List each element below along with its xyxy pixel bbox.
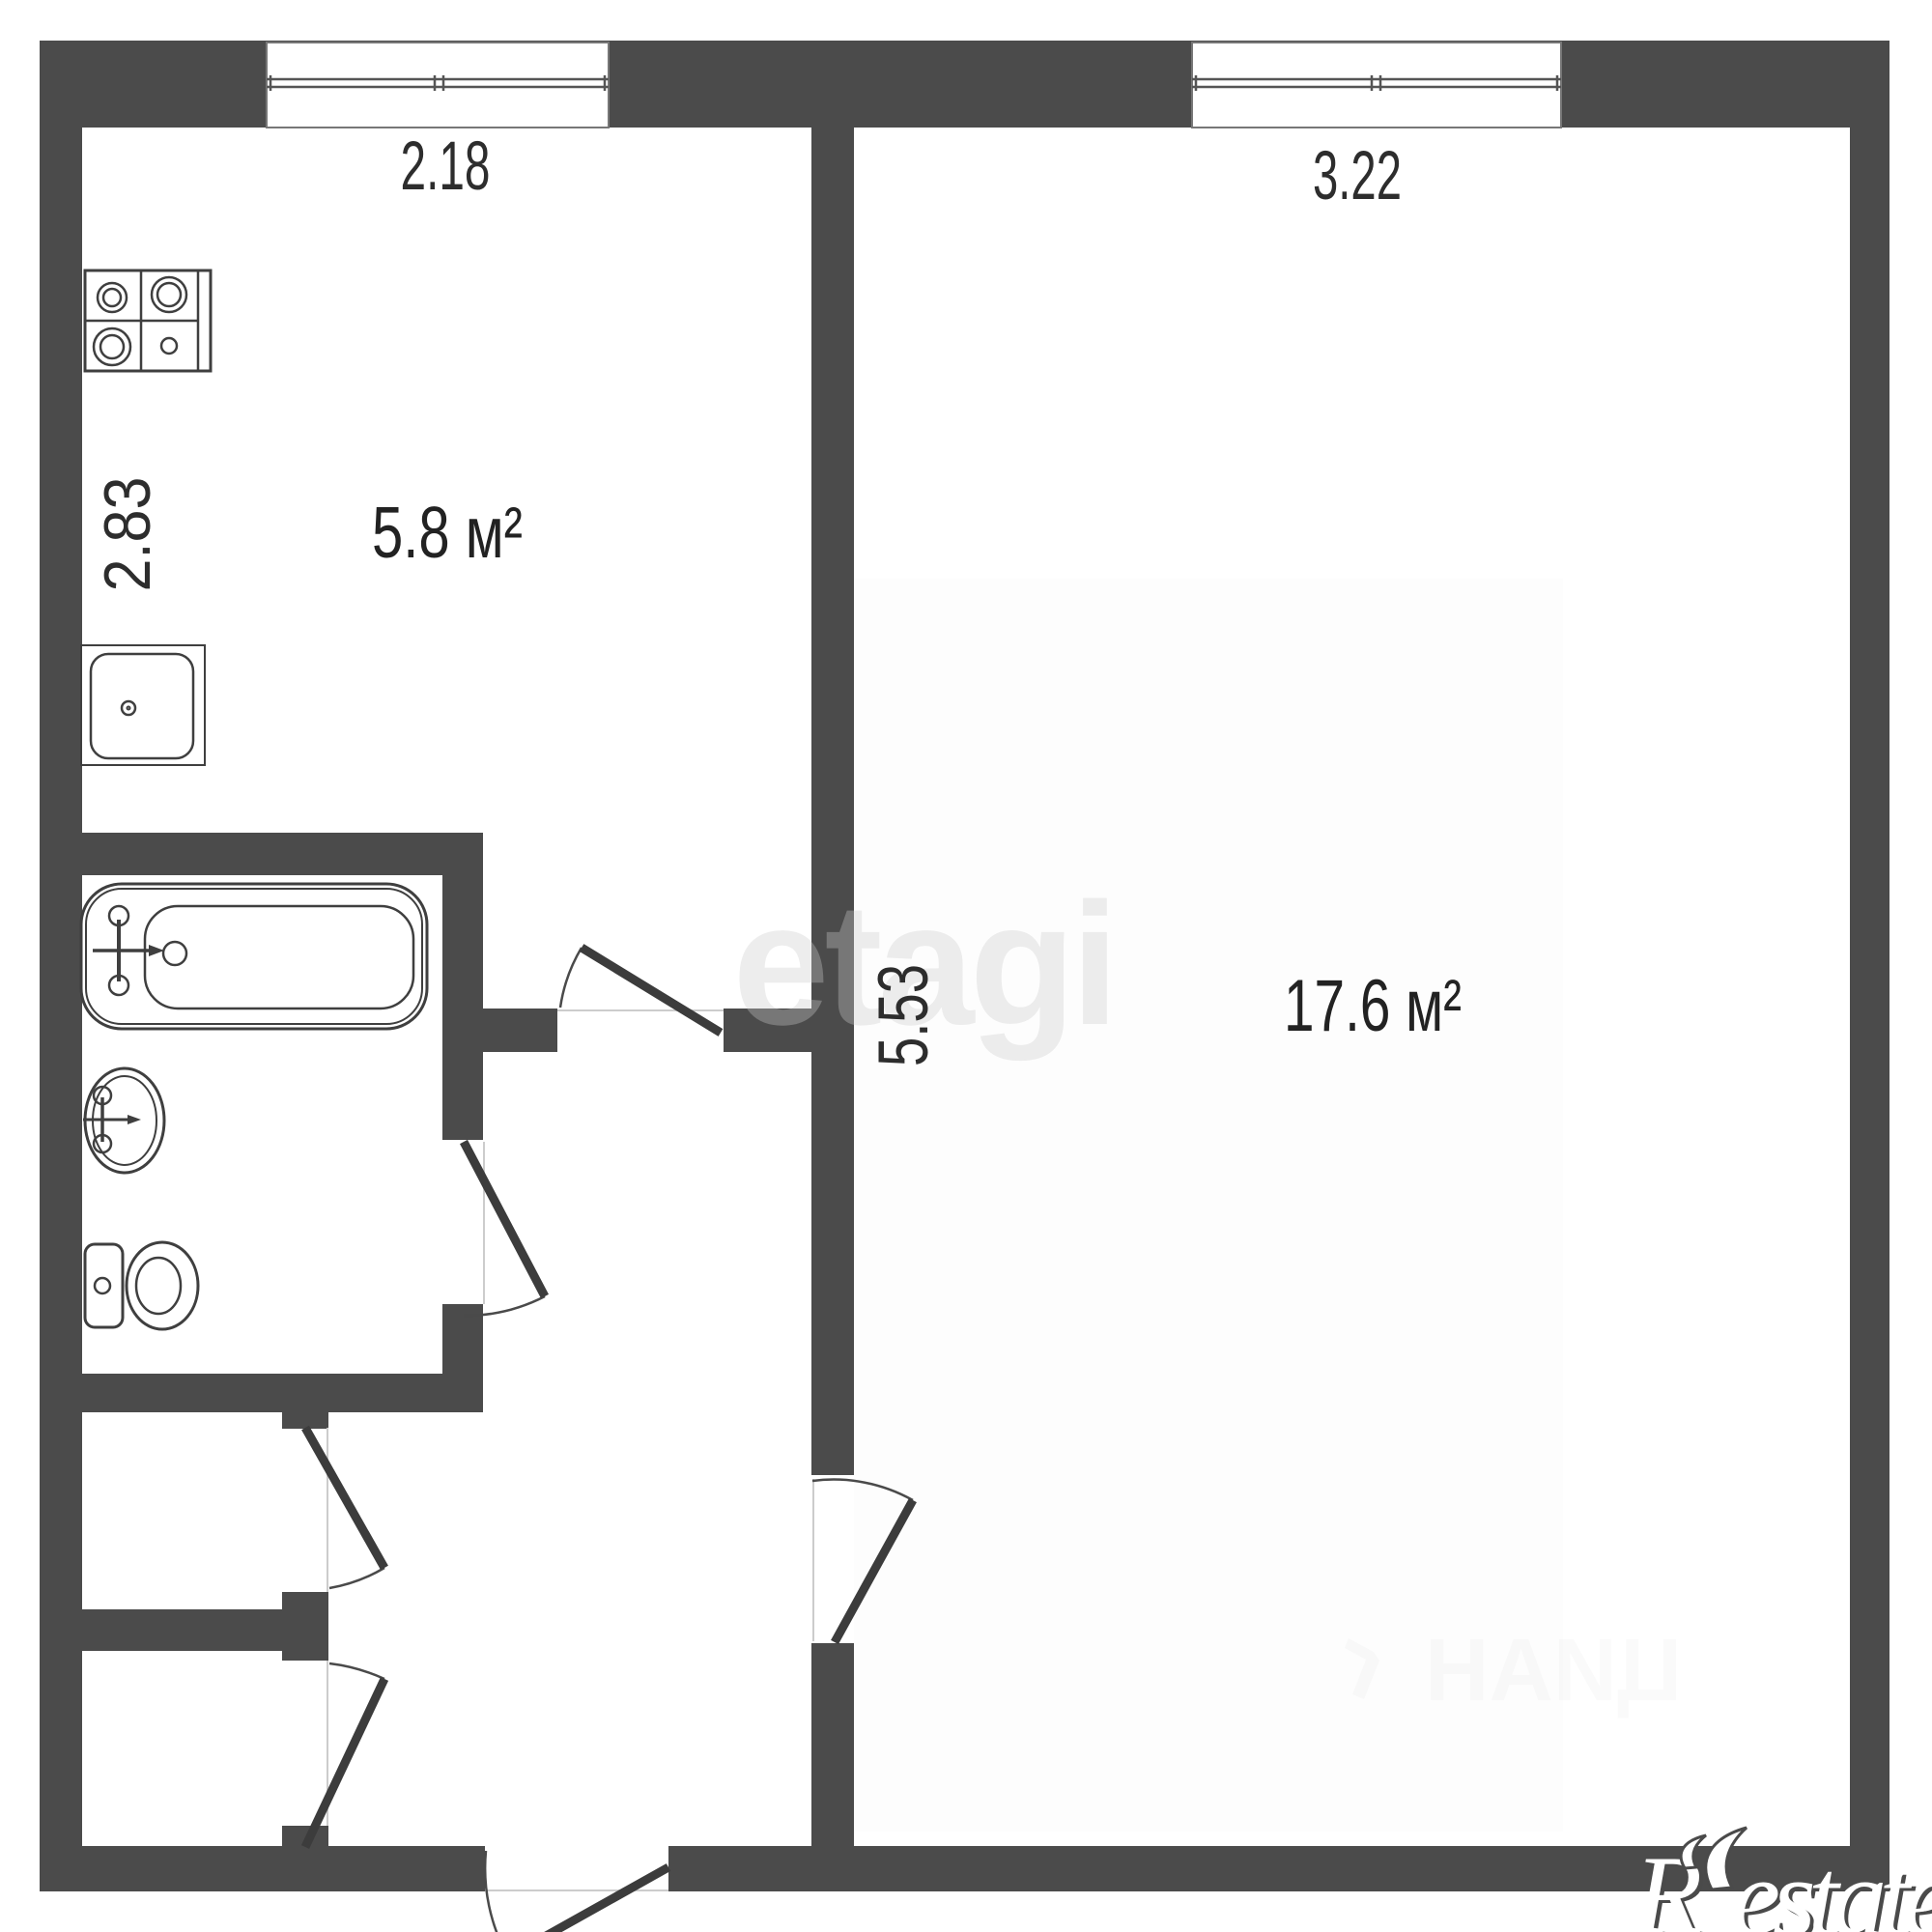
svg-text:2.83: 2.83 <box>91 477 164 592</box>
svg-text:2.18: 2.18 <box>401 128 491 205</box>
svg-text:17.6 м²: 17.6 м² <box>1284 965 1462 1047</box>
svg-text:3.22: 3.22 <box>1313 138 1402 214</box>
svg-text:estate: estate <box>1731 1836 1932 1932</box>
svg-text:5.53: 5.53 <box>865 964 943 1066</box>
svg-text:ЦИАН: ЦИАН <box>1425 1621 1682 1719</box>
svg-text:5.8 м²: 5.8 м² <box>372 492 523 573</box>
